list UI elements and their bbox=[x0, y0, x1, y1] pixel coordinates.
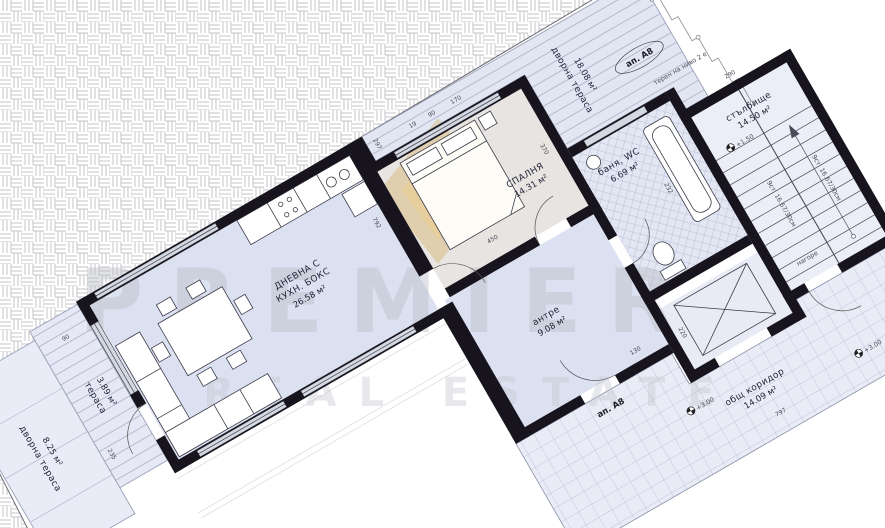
floor-plan-page: PREMIER REAL ESTATE bbox=[0, 0, 885, 528]
floor-plan-image: PREMIER REAL ESTATE bbox=[0, 0, 885, 528]
